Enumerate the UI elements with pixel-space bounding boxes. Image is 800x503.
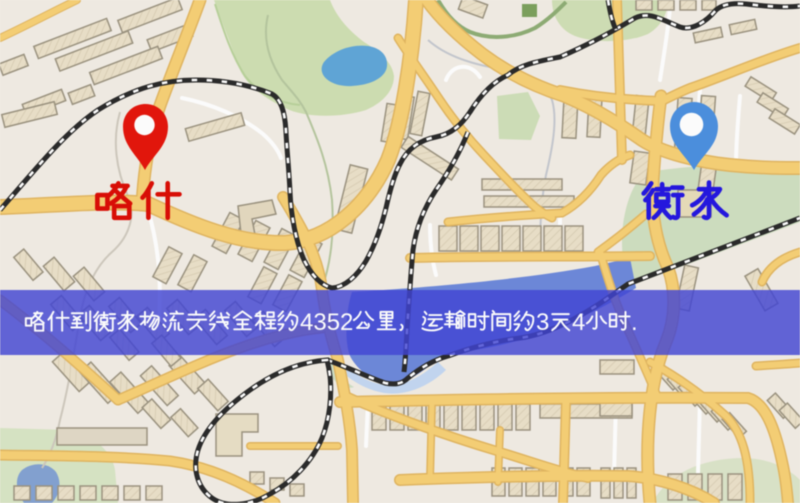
svg-text:.: . xyxy=(631,309,638,336)
svg-text:4: 4 xyxy=(572,309,585,336)
svg-text:3: 3 xyxy=(536,309,549,336)
svg-text:4352: 4352 xyxy=(300,309,353,336)
